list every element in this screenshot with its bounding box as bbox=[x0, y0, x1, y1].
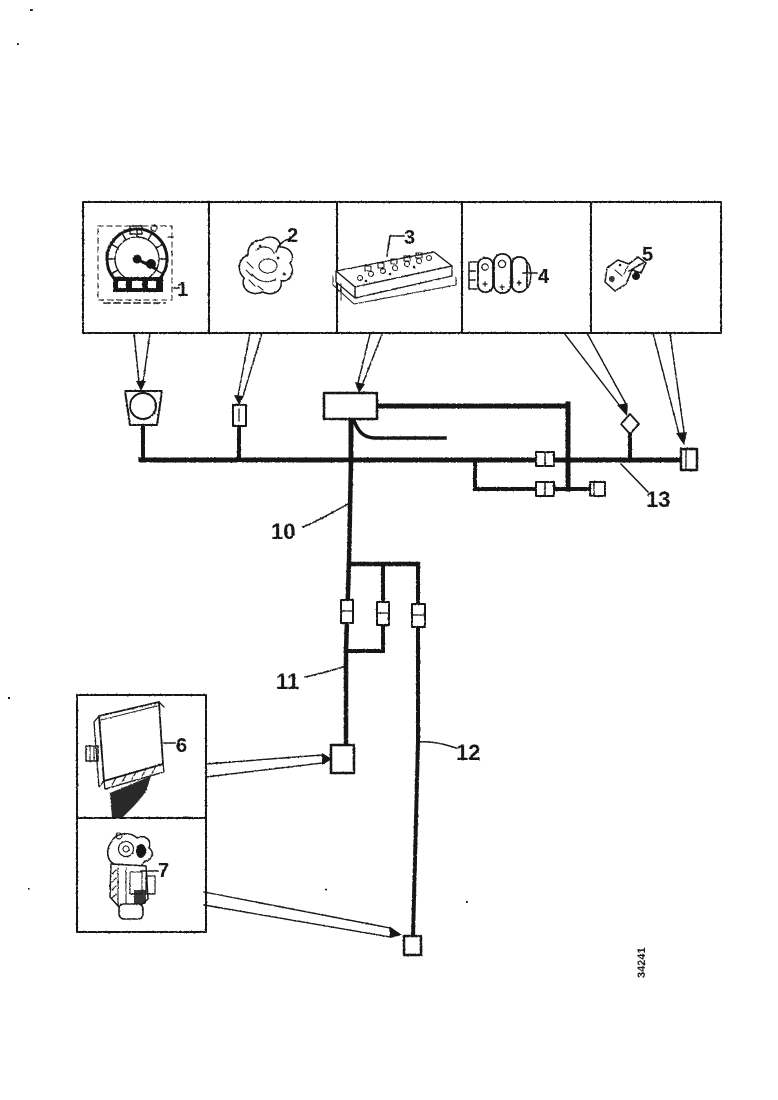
parts-diagram-page: 1 2 3 4 5 6 7 10 11 12 13 34241 bbox=[0, 0, 778, 1100]
leader-3 bbox=[387, 236, 404, 256]
figure-code: 34241 bbox=[636, 947, 648, 978]
harness-connectors bbox=[125, 391, 697, 955]
callout-2: 2 bbox=[287, 225, 298, 247]
leader-11 bbox=[305, 666, 346, 677]
leader-13 bbox=[621, 464, 648, 492]
callout-10: 10 bbox=[271, 519, 295, 544]
pump-connector bbox=[404, 936, 421, 955]
callout-13: 13 bbox=[646, 487, 670, 512]
part-box-1 bbox=[83, 202, 209, 333]
arrow-part-5 bbox=[653, 333, 687, 445]
part-1-gauge-drawing bbox=[98, 225, 173, 303]
callout-6: 6 bbox=[176, 735, 187, 757]
leader-10 bbox=[303, 504, 348, 527]
callout-labels: 1 2 3 4 5 6 7 10 11 12 13 bbox=[158, 225, 670, 882]
part-5-sensor-drawing bbox=[605, 257, 646, 291]
callout-7: 7 bbox=[158, 860, 169, 882]
arrow-part-7 bbox=[204, 892, 402, 938]
panel-connector-block bbox=[324, 393, 377, 419]
round-connector bbox=[130, 393, 156, 419]
callout-12: 12 bbox=[456, 740, 480, 765]
callout-11: 11 bbox=[276, 669, 299, 694]
callout-5: 5 bbox=[642, 244, 653, 266]
leader-12 bbox=[419, 742, 456, 748]
leader-arrows bbox=[134, 333, 687, 938]
arrow-part-6 bbox=[206, 753, 332, 777]
part-6-control-unit-drawing bbox=[86, 702, 164, 818]
control-unit-connector bbox=[331, 745, 354, 773]
part-2-bracket-drawing bbox=[239, 237, 292, 294]
arrow-part-3 bbox=[355, 334, 382, 393]
wiring-harness-diagram: 1 2 3 4 5 6 7 10 11 12 13 34241 bbox=[0, 0, 778, 1100]
callout-3: 3 bbox=[404, 227, 415, 249]
part-4-connector-block-drawing bbox=[469, 254, 531, 293]
callout-4: 4 bbox=[538, 266, 550, 288]
arrow-part-2 bbox=[234, 333, 262, 405]
wire-stub bbox=[353, 418, 445, 438]
arrow-part-1 bbox=[134, 333, 150, 391]
part-3-panel-drawing bbox=[333, 252, 456, 304]
callout-1: 1 bbox=[177, 279, 188, 301]
part-7-pump-drawing bbox=[108, 833, 155, 919]
bus-end-connector bbox=[681, 449, 697, 470]
stub-connector bbox=[621, 414, 639, 434]
arrow-part-4 bbox=[564, 333, 628, 416]
terminal-connector-lower bbox=[590, 482, 605, 496]
part-boxes bbox=[77, 202, 721, 932]
